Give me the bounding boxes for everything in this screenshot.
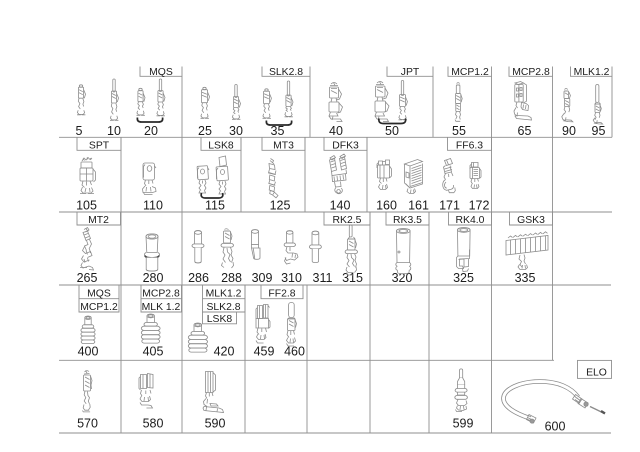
svg-text:161: 161 <box>408 199 429 213</box>
svg-text:310: 310 <box>281 271 302 285</box>
svg-text:590: 590 <box>205 417 226 431</box>
svg-text:325: 325 <box>453 271 474 285</box>
svg-text:65: 65 <box>518 124 532 138</box>
svg-text:599: 599 <box>453 417 474 431</box>
svg-text:GSK3: GSK3 <box>517 215 545 226</box>
svg-text:400: 400 <box>78 345 99 359</box>
svg-text:90: 90 <box>562 124 576 138</box>
svg-text:311: 311 <box>313 271 333 285</box>
svg-text:140: 140 <box>330 199 351 213</box>
svg-text:10: 10 <box>107 124 121 138</box>
svg-text:MCP2.8: MCP2.8 <box>142 289 180 300</box>
svg-text:580: 580 <box>143 417 164 431</box>
svg-text:MLK 1.2: MLK 1.2 <box>142 302 181 313</box>
svg-text:SLK2.8: SLK2.8 <box>269 67 303 78</box>
svg-text:MCP1.2: MCP1.2 <box>451 67 489 78</box>
svg-text:265: 265 <box>77 271 98 285</box>
svg-text:MT2: MT2 <box>88 215 109 226</box>
svg-text:115: 115 <box>205 199 225 213</box>
svg-text:600: 600 <box>545 420 566 434</box>
svg-text:570: 570 <box>77 417 98 431</box>
svg-text:MT3: MT3 <box>273 141 294 152</box>
svg-text:5: 5 <box>76 124 83 138</box>
svg-text:125: 125 <box>270 199 291 213</box>
svg-text:MCP2.8: MCP2.8 <box>512 67 550 78</box>
svg-text:MCP1.2: MCP1.2 <box>80 302 118 313</box>
svg-text:JPT: JPT <box>401 67 420 78</box>
svg-text:280: 280 <box>143 271 164 285</box>
svg-text:MLK1.2: MLK1.2 <box>574 67 610 78</box>
svg-text:160: 160 <box>376 199 397 213</box>
svg-text:172: 172 <box>469 199 490 213</box>
svg-text:288: 288 <box>221 271 242 285</box>
svg-text:SPT: SPT <box>89 141 110 152</box>
svg-text:459: 459 <box>254 345 275 359</box>
svg-text:SLK2.8: SLK2.8 <box>206 302 240 313</box>
svg-text:110: 110 <box>143 199 163 213</box>
svg-text:MQS: MQS <box>149 67 173 78</box>
svg-text:LSK8: LSK8 <box>207 314 233 325</box>
svg-text:420: 420 <box>214 345 235 359</box>
svg-text:460: 460 <box>284 345 305 359</box>
svg-text:95: 95 <box>592 124 606 138</box>
svg-text:286: 286 <box>188 271 209 285</box>
svg-text:FF2.8: FF2.8 <box>268 289 295 300</box>
svg-text:40: 40 <box>329 124 343 138</box>
svg-text:20: 20 <box>144 124 158 138</box>
svg-text:MLK1.2: MLK1.2 <box>206 289 242 300</box>
svg-text:335: 335 <box>515 271 536 285</box>
svg-text:405: 405 <box>143 345 164 359</box>
svg-text:RK4.0: RK4.0 <box>456 215 485 226</box>
svg-text:ELO: ELO <box>586 367 607 378</box>
svg-text:315: 315 <box>342 271 363 285</box>
svg-text:RK3.5: RK3.5 <box>393 215 422 226</box>
svg-text:FF6.3: FF6.3 <box>456 141 483 152</box>
svg-text:55: 55 <box>452 124 466 138</box>
svg-text:309: 309 <box>252 271 273 285</box>
svg-text:DFK3: DFK3 <box>332 141 359 152</box>
svg-text:35: 35 <box>271 124 285 138</box>
svg-text:30: 30 <box>229 124 243 138</box>
svg-text:50: 50 <box>385 124 399 138</box>
svg-text:171: 171 <box>439 199 460 213</box>
svg-text:105: 105 <box>76 199 97 213</box>
svg-text:MQS: MQS <box>87 289 111 300</box>
svg-text:LSK8: LSK8 <box>208 141 234 152</box>
svg-text:RK2.5: RK2.5 <box>333 215 362 226</box>
svg-text:25: 25 <box>198 124 212 138</box>
